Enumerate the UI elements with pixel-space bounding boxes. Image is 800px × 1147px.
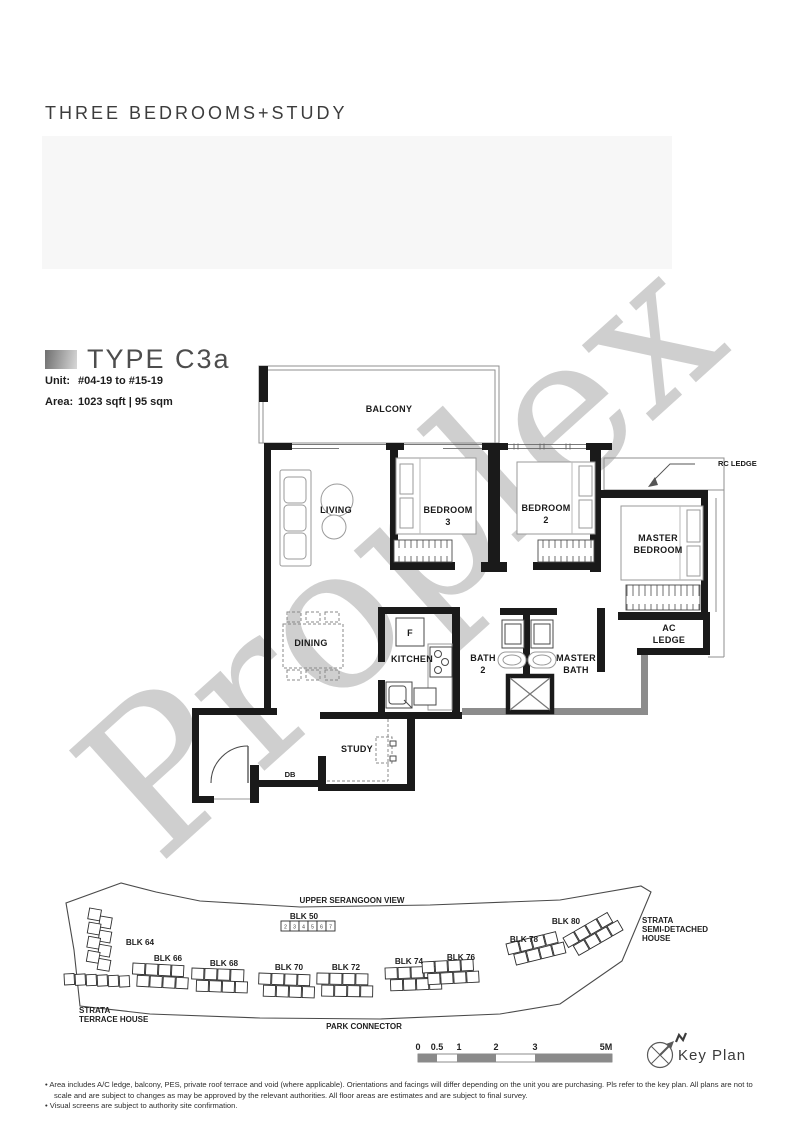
scale-bar: 0 0.5 1 2 3 5M [415,1042,612,1062]
label-living: LIVING [320,505,352,515]
label-road-bottom: PARK CONNECTOR [326,1022,402,1031]
unit-value: #04-19 to #15-19 [78,375,163,387]
blk50-unit-7: 7 [329,925,332,931]
sofa-icon [280,470,311,566]
cluster-blk68 [191,968,248,993]
unit-area-line: Area: 1023 sqft | 95 sqm [45,396,173,408]
label-rc-ledge: RC LEDGE [718,459,757,468]
label-bath2-1: BATH [470,653,496,663]
label-master-bath-1: MASTER [556,653,596,663]
label-bath2-2: 2 [480,665,485,675]
label-study: STUDY [341,744,373,754]
unit-number-line: Unit: #04-19 to #15-19 [45,375,163,387]
windows [292,444,586,450]
unit-label: Unit: [45,375,78,387]
tick-1: 1 [456,1042,461,1052]
label-road-top: UPPER SERANGOON VIEW [300,896,405,905]
label-fridge: F [407,628,413,638]
label-kitchen: KITCHEN [391,654,433,664]
label-blk70: BLK 70 [275,963,304,972]
label-blk76: BLK 76 [447,953,476,962]
cluster-blk76 [422,959,479,985]
cluster-blk66 [132,963,189,989]
label-blk68: BLK 68 [210,959,239,968]
label-strata-terrace-2: TERRACE HOUSE [79,1015,149,1024]
label-blk72: BLK 72 [332,963,361,972]
unit-type-row: TYPE C3a [45,344,231,375]
tick-05: 0.5 [431,1042,444,1052]
area-label: Area: [45,396,78,408]
label-bedroom2-2: 2 [543,515,548,525]
page-title: THREE BEDROOMS+STUDY [45,103,348,124]
tick-3: 3 [532,1042,537,1052]
label-master-bedroom-1: MASTER [638,533,678,543]
blk50-unit-6: 6 [320,925,323,931]
label-strata-semi-1: STRATA [642,916,673,925]
label-strata-terrace-1: STRATA [79,1006,110,1015]
label-blk80: BLK 80 [552,917,581,926]
label-blk66: BLK 66 [154,954,183,963]
label-strata-semi-2: SEMI-DETACHED [642,925,708,934]
key-plan-label: Key Plan [678,1047,746,1064]
blk50-unit-5: 5 [311,925,314,931]
label-blk74: BLK 74 [395,957,424,966]
label-ac-ledge-2: LEDGE [653,635,686,645]
shaft [508,676,552,712]
floor-plan: BALCONY LIVING DINING KITCHEN F BEDROOM … [192,366,757,803]
tick-2: 2 [493,1042,498,1052]
cluster-blk64 [79,908,119,971]
terrace-house-row [64,971,130,990]
area-value: 1023 sqft | 95 sqm [78,396,173,408]
label-blk50: BLK 50 [290,912,319,921]
blk50-unit-2: 2 [284,925,287,931]
type-color-swatch [45,350,77,369]
label-bedroom2-1: BEDROOM [521,503,570,513]
cluster-blk72 [317,973,373,997]
label-blk64: BLK 64 [126,938,155,947]
label-strata-semi-3: HOUSE [642,934,671,943]
kitchen-fixtures [386,618,452,710]
entrance-door [211,746,250,799]
footnote-2: • Visual screens are subject to authorit… [45,1101,761,1112]
label-bedroom3-1: BEDROOM [423,505,472,515]
key-plan: 2 3 4 5 6 7 [64,883,708,1031]
label-master-bedroom-2: BEDROOM [633,545,682,555]
label-master-bath-2: BATH [563,665,589,675]
label-ac-ledge-1: AC [662,623,676,633]
label-dining: DINING [294,638,327,648]
blk50-unit-3: 3 [293,925,296,931]
tick-5m: 5M [600,1042,613,1052]
brochure-page: Proplex THREE BEDROOMS+STUDY TYPE C3a Un… [0,0,800,1147]
label-bedroom3-2: 3 [445,517,450,527]
label-blk78: BLK 78 [510,935,539,944]
label-balcony: BALCONY [366,404,413,414]
rc-ledge-leader [648,464,695,487]
tick-0: 0 [415,1042,420,1052]
cluster-blk70 [258,973,315,998]
label-db: DB [285,770,296,779]
blk50-unit-4: 4 [302,925,305,931]
drawings-overlay: BALCONY LIVING DINING KITCHEN F BEDROOM … [0,0,800,1147]
footnote-1: • Area includes A/C ledge, balcony, PES,… [45,1080,761,1101]
footnotes: • Area includes A/C ledge, balcony, PES,… [45,1080,761,1112]
blk50-units: 2 3 4 5 6 7 [281,921,335,931]
unit-type-title: TYPE C3a [87,344,231,375]
highlighted-unit [231,969,244,981]
